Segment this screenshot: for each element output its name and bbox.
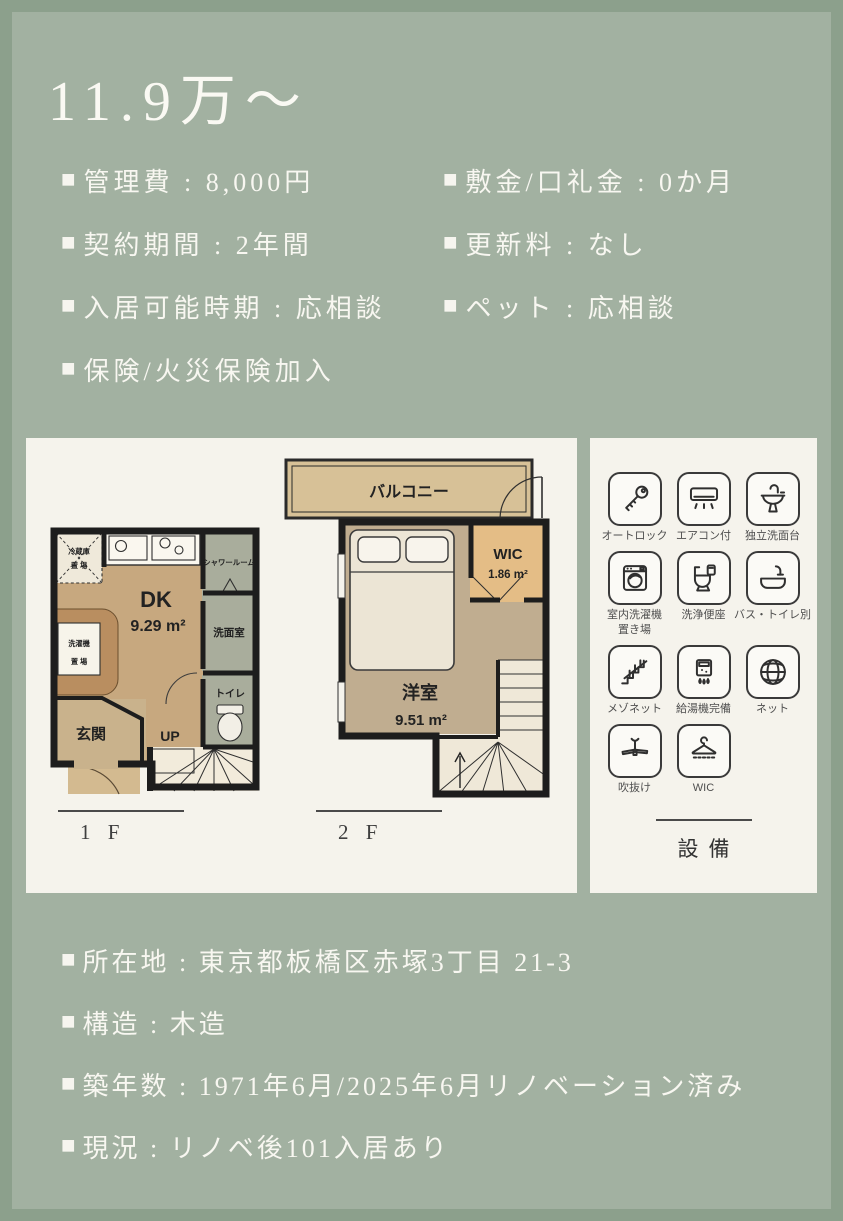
ceiling-fan-icon <box>618 734 652 768</box>
equipment-item-autolock: オートロック <box>604 472 666 543</box>
summary-item-hoken: ■ 保険/火災保険加入 <box>61 351 443 388</box>
hanger-icon <box>687 734 721 768</box>
equipment-item-waterheater: 給湯機完備 <box>673 645 735 716</box>
equipment-grid: オートロック エアコン付 <box>590 438 817 795</box>
room-area-wic: 1.86 m² <box>488 569 528 581</box>
divider-line <box>656 819 752 821</box>
room-label-balcony: バルコニー <box>369 483 449 501</box>
summary-item-shikikin: ■ 敷金/口礼金 : 0か月 <box>443 162 736 199</box>
equipment-item-maisonette: メゾネット <box>604 645 666 716</box>
room-area-dk: 9.29 m² <box>130 618 185 635</box>
floorplan-panel: DK 9.29 m² シャワールーム 洗面室 トイレ 玄関 UP 冷蔵庫 置 場… <box>26 438 577 893</box>
detail-row-text: 所在地 : 東京都板橋区赤塚3丁目 21-3 <box>83 942 574 979</box>
water-heater-icon <box>687 655 721 689</box>
summary-row: ■ 契約期間 : 2年間 ■ 更新料 : なし <box>61 223 821 263</box>
summary-item-text: ペット : 応相談 <box>466 288 678 325</box>
bullet-square-icon: ■ <box>61 357 80 381</box>
detail-row-text: 築年数 : 1971年6月/2025年6月リノベーション済み <box>83 1066 746 1103</box>
summary-item-text: 入居可能時期 : 応相談 <box>84 288 386 325</box>
rent-headline: 11.9万～ <box>48 56 310 137</box>
bullet-square-icon: ■ <box>61 1134 79 1158</box>
equipment-item-washbasin: 独立洗面台 <box>742 472 804 543</box>
stairs-up-label: UP <box>160 728 179 744</box>
air-conditioner-icon <box>687 482 721 516</box>
bullet-square-icon: ■ <box>61 948 79 972</box>
detail-row-text: 現況 : リノベ後101入居あり <box>83 1128 450 1165</box>
flyer-canvas: 11.9万～ ■ 管理費 : 8,000円 ■ 敷金/口礼金 : 0か月 ■ 契… <box>0 0 843 1221</box>
summary-item-text: 管理費 : 8,000円 <box>84 162 315 199</box>
detail-row-structure: ■ 構造 : 木造 <box>61 1002 831 1042</box>
summary-item-nyukyo: ■ 入居可能時期 : 応相談 <box>61 288 443 325</box>
summary-item-koshinryo: ■ 更新料 : なし <box>443 225 648 262</box>
equipment-item-net: ネット <box>742 645 804 716</box>
detail-row-text: 構造 : 木造 <box>83 1004 228 1041</box>
room-label-toilet: トイレ <box>215 688 245 700</box>
room-area-yoshitsu: 9.51 m² <box>395 712 447 729</box>
room-label-yoshitsu: 洋室 <box>402 682 438 703</box>
detail-row-status: ■ 現況 : リノベ後101入居あり <box>61 1126 831 1166</box>
bullet-square-icon: ■ <box>61 1072 79 1096</box>
equipment-item-void: 吹抜け <box>604 724 666 795</box>
bullet-square-icon: ■ <box>61 231 80 255</box>
summary-item-text: 敷金/口礼金 : 0か月 <box>466 162 736 199</box>
washing-machine-icon <box>618 561 652 595</box>
fridge-space-label: 冷蔵庫 <box>68 547 90 556</box>
bullet-square-icon: ■ <box>61 294 80 318</box>
room-label-shower: シャワールーム <box>203 558 255 567</box>
bullet-square-icon: ■ <box>61 1010 79 1034</box>
fridge-space-label: 置 場 <box>71 561 88 570</box>
equipment-item-bath: バス・トイレ別 <box>742 551 804 637</box>
globe-icon <box>756 655 790 689</box>
bidet-toilet-icon <box>687 561 721 595</box>
bullet-square-icon: ■ <box>443 168 462 192</box>
summary-item-text: 契約期間 : 2年間 <box>84 225 313 262</box>
equipment-item-aircon: エアコン付 <box>673 472 735 543</box>
stairs-icon <box>618 655 652 689</box>
room-label-wic: WIC <box>493 546 522 563</box>
summary-row: ■ 管理費 : 8,000円 ■ 敷金/口礼金 : 0か月 <box>61 160 821 200</box>
room-label-entrance: 玄関 <box>76 725 106 743</box>
equipment-item-washlet: 洗浄便座 <box>673 551 735 637</box>
equipment-item-wic: WIC <box>673 724 735 795</box>
details-section: ■ 所在地 : 東京都板橋区赤塚3丁目 21-3 ■ 構造 : 木造 ■ 築年数… <box>61 940 831 1188</box>
bullet-square-icon: ■ <box>61 168 80 192</box>
floor-label-2f: 2 F <box>316 810 442 845</box>
bullet-square-icon: ■ <box>443 294 462 318</box>
laundry-space-label: 洗濯機 <box>68 639 90 648</box>
floorplan-1f: DK 9.29 m² シャワールーム 洗面室 トイレ 玄関 UP 冷蔵庫 置 場… <box>46 523 262 796</box>
summary-section: ■ 管理費 : 8,000円 ■ 敷金/口礼金 : 0か月 ■ 契約期間 : 2… <box>61 160 821 412</box>
key-icon <box>618 482 652 516</box>
equipment-panel: オートロック エアコン付 <box>590 438 817 893</box>
bullet-square-icon: ■ <box>443 231 462 255</box>
summary-item-text: 更新料 : なし <box>466 225 648 262</box>
summary-item-pet: ■ ペット : 応相談 <box>443 288 678 325</box>
summary-item-text: 保険/火災保険加入 <box>84 351 335 388</box>
bathtub-icon <box>756 561 790 595</box>
room-label-dk: DK <box>140 587 172 612</box>
washbasin-icon <box>756 482 790 516</box>
equipment-item-washer: 室内洗濯機 置き場 <box>604 551 666 637</box>
summary-row: ■ 保険/火災保険加入 <box>61 349 821 389</box>
equipment-footer: 設備 <box>590 819 817 863</box>
detail-row-age: ■ 築年数 : 1971年6月/2025年6月リノベーション済み <box>61 1064 831 1104</box>
detail-row-location: ■ 所在地 : 東京都板橋区赤塚3丁目 21-3 <box>61 940 831 980</box>
laundry-space-label: 置 場 <box>71 657 88 666</box>
summary-item-keiyaku: ■ 契約期間 : 2年間 <box>61 225 443 262</box>
summary-item-kanrihi: ■ 管理費 : 8,000円 <box>61 162 443 199</box>
summary-row: ■ 入居可能時期 : 応相談 ■ ペット : 応相談 <box>61 286 821 326</box>
floorplan-2f: バルコニー WIC 1.86 m² 洋室 9.51 m² <box>284 456 556 801</box>
equipment-heading: 設備 <box>668 833 740 863</box>
floor-label-1f: 1 F <box>58 810 184 845</box>
room-label-washroom: 洗面室 <box>213 626 245 639</box>
